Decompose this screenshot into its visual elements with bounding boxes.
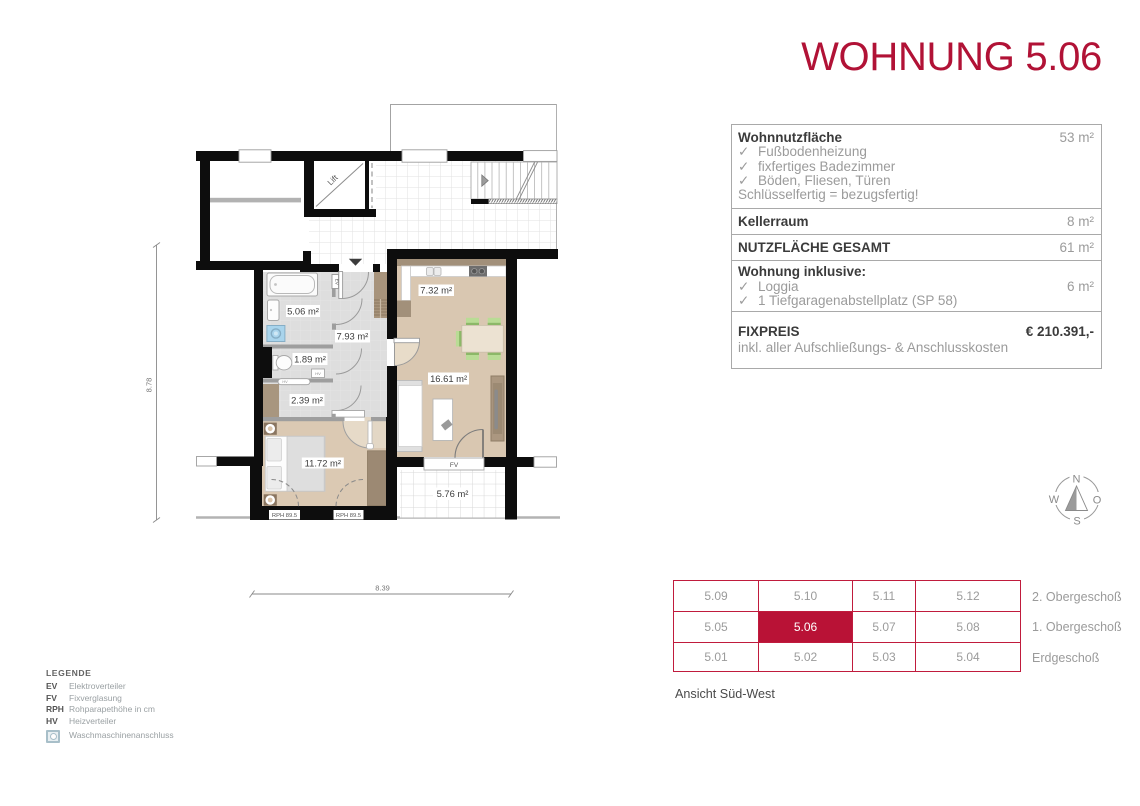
svg-text:HV: HV <box>315 371 321 376</box>
svg-text:8.78: 8.78 <box>145 378 154 393</box>
svg-text:11.72 m²: 11.72 m² <box>305 457 341 468</box>
svg-text:1.89 m²: 1.89 m² <box>294 353 326 364</box>
svg-text:RPH 89.5: RPH 89.5 <box>336 513 361 519</box>
svg-text:5.06 m²: 5.06 m² <box>287 305 319 316</box>
svg-text:16.61 m²: 16.61 m² <box>430 373 467 384</box>
svg-text:O: O <box>1093 495 1102 507</box>
svg-text:8.39: 8.39 <box>375 584 390 593</box>
svg-text:5.76 m²: 5.76 m² <box>437 488 469 499</box>
svg-text:7.93 m²: 7.93 m² <box>337 331 369 342</box>
svg-text:S: S <box>1073 516 1080 528</box>
svg-text:FV: FV <box>450 462 459 469</box>
svg-text:N: N <box>1073 474 1081 486</box>
svg-text:HV: HV <box>282 380 288 384</box>
svg-text:W: W <box>1049 494 1060 506</box>
svg-text:7.32 m²: 7.32 m² <box>420 285 452 296</box>
svg-text:2.39 m²: 2.39 m² <box>291 394 323 405</box>
svg-text:RPH 89.5: RPH 89.5 <box>272 513 297 519</box>
